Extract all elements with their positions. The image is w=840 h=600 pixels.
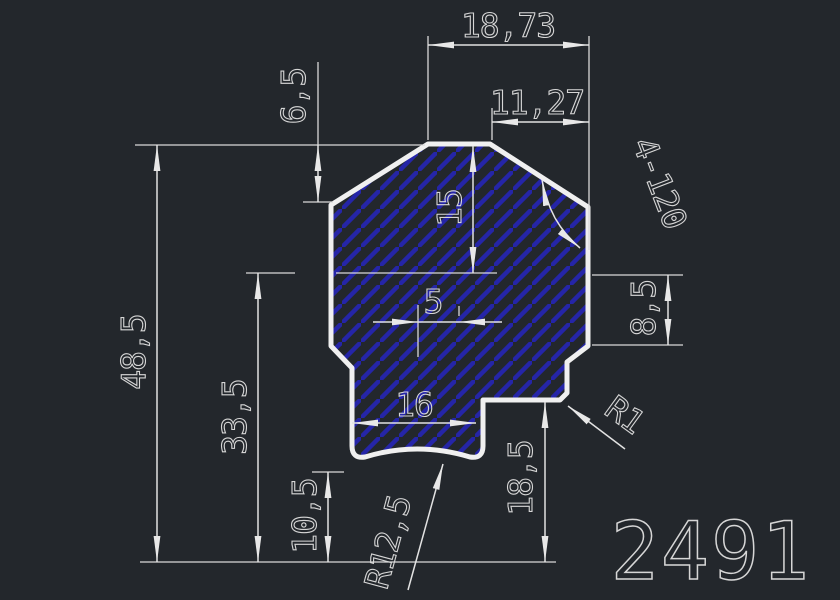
label-15: 15 [430,189,469,227]
label-10-5: 10,5 [285,478,324,553]
label-16: 16 [395,385,433,424]
cad-drawing: 18,73 11,27 5 16 48,5 33,5 6,5 15 8,5 18… [0,0,840,600]
label-48-5: 48,5 [114,314,153,389]
label-11-27: 11,27 [490,83,584,122]
label-6-5: 6,5 [274,68,313,125]
label-33-5: 33,5 [215,379,254,454]
label-18-73: 18,73 [461,6,555,45]
part-number: 2491 [611,505,812,598]
label-8-5: 8,5 [624,280,663,337]
cad-drawing-canvas: 18,73 11,27 5 16 48,5 33,5 6,5 15 8,5 18… [0,0,840,600]
label-18-5: 18,5 [501,440,540,515]
label-5: 5 [424,282,443,321]
